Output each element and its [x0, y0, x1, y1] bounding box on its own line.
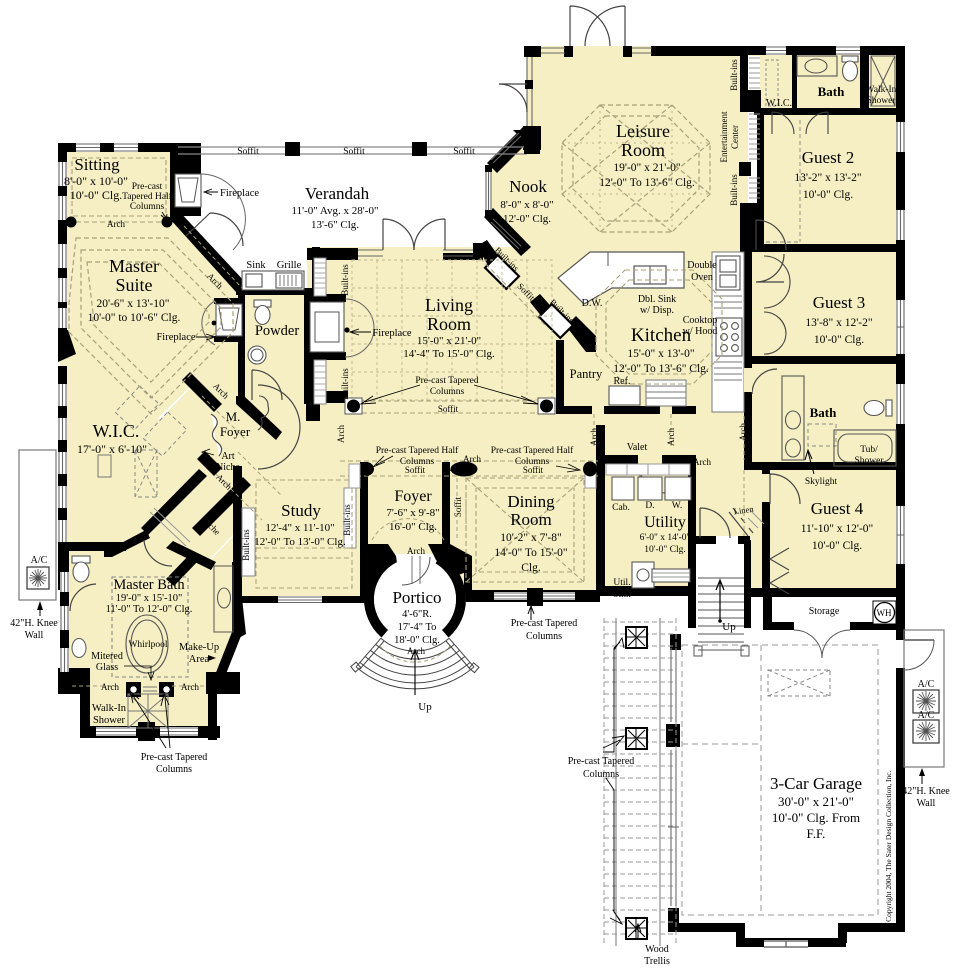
svg-text:Glass: Glass [96, 662, 118, 673]
svg-text:w/ Hood: w/ Hood [683, 326, 718, 337]
svg-text:Built-ins: Built-ins [342, 504, 352, 536]
svg-text:Leisure: Leisure [616, 121, 670, 141]
svg-text:Columns: Columns [156, 764, 192, 775]
svg-text:Fireplace: Fireplace [372, 328, 411, 339]
svg-text:Pre-cast Tapered: Pre-cast Tapered [568, 756, 635, 767]
svg-text:Guest 2: Guest 2 [802, 148, 854, 167]
svg-text:Foyer: Foyer [394, 488, 432, 505]
svg-text:Arch: Arch [589, 428, 599, 446]
svg-text:Bath: Bath [818, 84, 846, 99]
svg-text:Shower: Shower [866, 96, 896, 106]
svg-text:10'-0" Clg. From: 10'-0" Clg. From [772, 810, 860, 825]
svg-text:Trellis: Trellis [644, 956, 670, 967]
svg-text:Powder: Powder [255, 323, 299, 339]
svg-text:20'-6" x 13'-10": 20'-6" x 13'-10" [97, 298, 170, 310]
svg-text:Built-ins: Built-ins [241, 529, 251, 561]
svg-text:Arch: Arch [693, 457, 711, 467]
svg-text:Storage: Storage [809, 606, 840, 617]
svg-text:10'-0" Clg.: 10'-0" Clg. [644, 545, 685, 555]
svg-text:Valet: Valet [627, 442, 648, 453]
svg-text:Foyer: Foyer [220, 424, 251, 439]
svg-text:Study: Study [281, 501, 321, 520]
svg-text:Arch: Arch [336, 425, 346, 443]
svg-text:Built-ins: Built-ins [340, 264, 350, 296]
svg-text:Wall: Wall [917, 798, 936, 809]
svg-text:11'-0" To 12'-0" Clg.: 11'-0" To 12'-0" Clg. [106, 604, 193, 615]
svg-text:12'-4" x 11'-10": 12'-4" x 11'-10" [265, 522, 334, 534]
svg-text:D.: D. [645, 501, 654, 511]
svg-text:10'-0" to 10'-6" Clg.: 10'-0" to 10'-6" Clg. [88, 312, 181, 324]
svg-text:Whirlpool: Whirlpool [128, 640, 167, 650]
svg-text:Arch: Arch [101, 682, 119, 692]
svg-text:15'-0" x 21'-0": 15'-0" x 21'-0" [417, 335, 481, 347]
svg-text:Wall: Wall [25, 630, 44, 641]
svg-text:Util.: Util. [613, 578, 630, 588]
svg-text:Double: Double [687, 260, 717, 271]
svg-text:F.F.: F.F. [807, 826, 826, 841]
svg-text:Pre-cast Tapered: Pre-cast Tapered [415, 376, 479, 386]
svg-text:7'-6" x 9'-8": 7'-6" x 9'-8" [386, 507, 439, 519]
svg-text:Area: Area [189, 654, 210, 665]
svg-text:13'-8" x 12'-2": 13'-8" x 12'-2" [805, 317, 872, 329]
svg-text:Arch: Arch [181, 682, 199, 692]
svg-text:Mitered: Mitered [91, 651, 123, 662]
svg-text:Dbl. Sink: Dbl. Sink [638, 294, 676, 305]
svg-text:Sitting: Sitting [74, 155, 120, 174]
svg-text:Pre-cast: Pre-cast [132, 182, 163, 192]
svg-text:Sink: Sink [246, 260, 266, 271]
svg-text:Soffit: Soffit [237, 146, 259, 157]
svg-text:Soffit: Soffit [523, 465, 544, 475]
svg-text:10'-0" Clg.: 10'-0" Clg. [70, 188, 122, 202]
svg-text:Art: Art [221, 451, 235, 462]
svg-text:Grille: Grille [277, 260, 302, 271]
svg-text:Cab.: Cab. [612, 503, 630, 513]
svg-text:A/C: A/C [918, 679, 935, 690]
svg-text:Clg.: Clg. [521, 562, 541, 574]
svg-text:Guest 3: Guest 3 [813, 293, 865, 312]
svg-text:42"H. Knee: 42"H. Knee [10, 618, 58, 629]
svg-text:Room: Room [510, 510, 552, 529]
svg-text:Arch: Arch [107, 219, 125, 229]
svg-text:Room: Room [427, 314, 471, 334]
svg-text:A/C: A/C [31, 555, 48, 566]
svg-text:12'-0" To 13'-6" Clg.: 12'-0" To 13'-6" Clg. [599, 177, 695, 189]
svg-text:Sink: Sink [613, 590, 631, 600]
svg-text:10'-0" Clg.: 10'-0" Clg. [803, 189, 853, 201]
svg-text:Guest 4: Guest 4 [811, 499, 864, 518]
svg-text:Portico: Portico [392, 588, 441, 607]
svg-text:Entertainment: Entertainment [719, 111, 729, 162]
svg-text:Soffit: Soffit [453, 496, 463, 517]
svg-text:Shower: Shower [854, 456, 884, 466]
svg-text:12'-0" To 13'-6" Clg.: 12'-0" To 13'-6" Clg. [613, 363, 709, 375]
svg-text:M.: M. [226, 409, 241, 424]
svg-text:Verandah: Verandah [305, 184, 370, 203]
svg-text:Arch: Arch [738, 423, 748, 441]
svg-text:Soffit: Soffit [453, 146, 475, 157]
svg-text:W.I.C.: W.I.C. [766, 98, 792, 109]
svg-text:Soffit: Soffit [438, 404, 459, 414]
svg-text:Suite: Suite [115, 275, 152, 295]
svg-text:10'-0" Clg.: 10'-0" Clg. [812, 540, 862, 552]
svg-text:Cooktop: Cooktop [683, 315, 717, 326]
svg-text:14'-4" To 15'-0" Clg.: 14'-4" To 15'-0" Clg. [403, 348, 495, 360]
svg-text:Walk-In: Walk-In [866, 85, 897, 95]
svg-text:17'-0" x 6'-10": 17'-0" x 6'-10" [77, 442, 147, 456]
svg-text:Up: Up [418, 701, 432, 713]
svg-text:w/ Disp.: w/ Disp. [640, 305, 674, 316]
svg-text:6'-0" x 14'-0": 6'-0" x 14'-0" [640, 533, 691, 543]
svg-text:11'-10" x 12'-0": 11'-10" x 12'-0" [801, 523, 874, 535]
svg-text:Fireplace: Fireplace [220, 188, 259, 199]
svg-text:Nook: Nook [509, 177, 547, 196]
svg-text:19'-0" x 21'-0": 19'-0" x 21'-0" [613, 162, 680, 174]
svg-text:Fireplace: Fireplace [156, 332, 195, 343]
svg-text:Room: Room [621, 140, 665, 160]
svg-text:Make-Up: Make-Up [179, 642, 219, 653]
svg-text:Niche: Niche [216, 462, 240, 473]
svg-text:Utility: Utility [644, 514, 686, 531]
svg-text:10'-0" Clg.: 10'-0" Clg. [814, 334, 864, 346]
svg-text:Pre-cast Tapered Half: Pre-cast Tapered Half [491, 445, 574, 456]
svg-text:10'-2" x 7'-8": 10'-2" x 7'-8" [500, 532, 561, 544]
svg-text:Built-ins: Built-ins [340, 368, 350, 400]
svg-text:3-Car Garage: 3-Car Garage [770, 774, 862, 793]
svg-text:12'-0" To 13'-0" Clg.: 12'-0" To 13'-0" Clg. [254, 536, 346, 548]
svg-text:Shower: Shower [93, 715, 126, 726]
svg-text:13'-6" Clg.: 13'-6" Clg. [311, 219, 359, 231]
svg-text:W.: W. [672, 501, 682, 511]
svg-text:Oven: Oven [691, 272, 713, 283]
svg-text:16'-0" Clg.: 16'-0" Clg. [389, 521, 437, 533]
svg-text:Pre-cast Tapered Half: Pre-cast Tapered Half [376, 445, 459, 456]
svg-text:4'-6"R.: 4'-6"R. [402, 609, 432, 620]
svg-text:Arch: Arch [407, 546, 425, 556]
svg-text:Pre-cast Tapered: Pre-cast Tapered [511, 618, 578, 629]
svg-text:Living: Living [425, 295, 473, 315]
svg-text:15'-0" x 13'-0": 15'-0" x 13'-0" [627, 348, 694, 360]
svg-text:Built-ins: Built-ins [729, 59, 739, 91]
svg-text:D.W.: D.W. [582, 298, 603, 309]
svg-text:Columns: Columns [583, 769, 619, 780]
svg-text:© Copyright 2004, The Sater De: © Copyright 2004, The Sater Design Colle… [884, 770, 893, 929]
svg-text:42"H. Knee: 42"H. Knee [902, 786, 950, 797]
svg-text:17'-4" To: 17'-4" To [398, 622, 437, 633]
svg-text:Pre-cast Tapered: Pre-cast Tapered [141, 752, 208, 763]
svg-text:Tapered Half: Tapered Half [122, 191, 173, 202]
svg-text:Dining: Dining [507, 492, 555, 511]
svg-text:Up: Up [722, 621, 736, 633]
svg-text:Columns: Columns [130, 202, 165, 212]
svg-text:8'-0" x 10'-0": 8'-0" x 10'-0" [64, 174, 128, 188]
svg-text:30'-0" x 21'-0": 30'-0" x 21'-0" [778, 794, 854, 809]
svg-text:Arch: Arch [463, 454, 481, 464]
svg-text:Tub/: Tub/ [860, 445, 878, 455]
svg-text:Columns: Columns [430, 387, 465, 397]
svg-text:Arch: Arch [666, 428, 676, 446]
svg-text:12'-0" Clg.: 12'-0" Clg. [503, 213, 551, 225]
svg-text:Walk-In: Walk-In [92, 703, 127, 714]
svg-text:8'-0" x 8'-0": 8'-0" x 8'-0" [500, 199, 553, 211]
svg-text:13'-2" x 13'-2": 13'-2" x 13'-2" [794, 172, 861, 184]
svg-text:Pantry: Pantry [570, 367, 603, 381]
svg-text:A/C: A/C [918, 710, 935, 721]
svg-text:WH: WH [877, 608, 892, 618]
svg-text:W.I.C.: W.I.C. [93, 421, 140, 441]
svg-text:Ref.: Ref. [614, 376, 631, 387]
svg-text:Bath: Bath [810, 405, 838, 420]
svg-text:Wood: Wood [645, 944, 669, 955]
svg-text:Master: Master [109, 256, 159, 276]
svg-text:14'-0" To 15'-0": 14'-0" To 15'-0" [494, 547, 567, 559]
svg-text:Arch: Arch [407, 646, 425, 656]
svg-text:Master Bath: Master Bath [113, 577, 185, 593]
svg-text:Columns: Columns [526, 631, 562, 642]
svg-text:Soffit: Soffit [405, 465, 426, 475]
svg-text:18'-0" Clg.: 18'-0" Clg. [394, 635, 440, 646]
svg-text:11'-0" Avg. x 28'-0": 11'-0" Avg. x 28'-0" [292, 205, 379, 217]
svg-text:19'-0" x 15'-10": 19'-0" x 15'-10" [116, 593, 183, 604]
svg-text:Soffit: Soffit [343, 146, 365, 157]
svg-text:Built-ins: Built-ins [729, 174, 739, 206]
svg-text:Center: Center [730, 125, 740, 149]
svg-text:Skylight: Skylight [805, 477, 838, 487]
